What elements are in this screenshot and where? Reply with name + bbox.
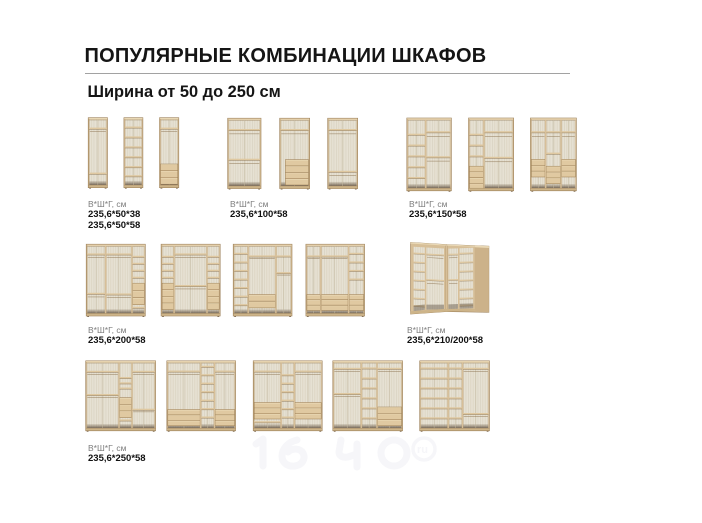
svg-text:ru: ru: [417, 444, 428, 456]
